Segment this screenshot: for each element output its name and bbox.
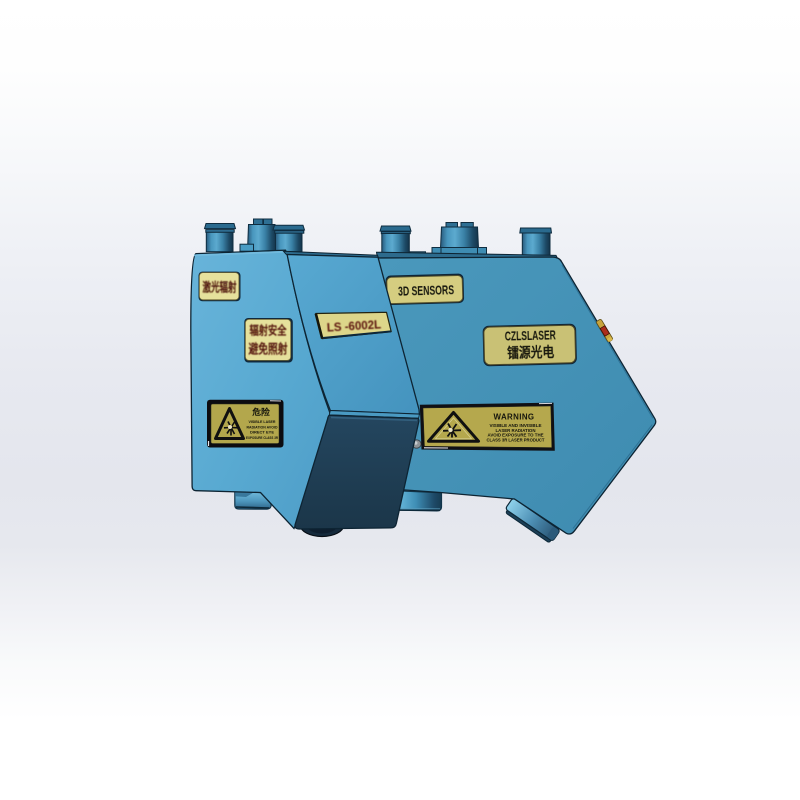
svg-text:镭源光电: 镭源光电	[507, 344, 554, 361]
svg-text:危险: 危险	[251, 406, 270, 417]
svg-text:3D SENSORS: 3D SENSORS	[398, 283, 454, 299]
svg-text:避免照射: 避免照射	[249, 342, 288, 357]
svg-text:CZLSLASER: CZLSLASER	[505, 327, 557, 343]
svg-text:EXPOSURE CLASS 3R: EXPOSURE CLASS 3R	[246, 435, 278, 440]
svg-text:激光辐射: 激光辐射	[203, 280, 237, 295]
svg-text:辐射安全: 辐射安全	[250, 323, 288, 338]
svg-text:CLASS 3R LASER PRODUCT: CLASS 3R LASER PRODUCT	[487, 437, 545, 442]
svg-text:WARNING: WARNING	[494, 412, 535, 421]
